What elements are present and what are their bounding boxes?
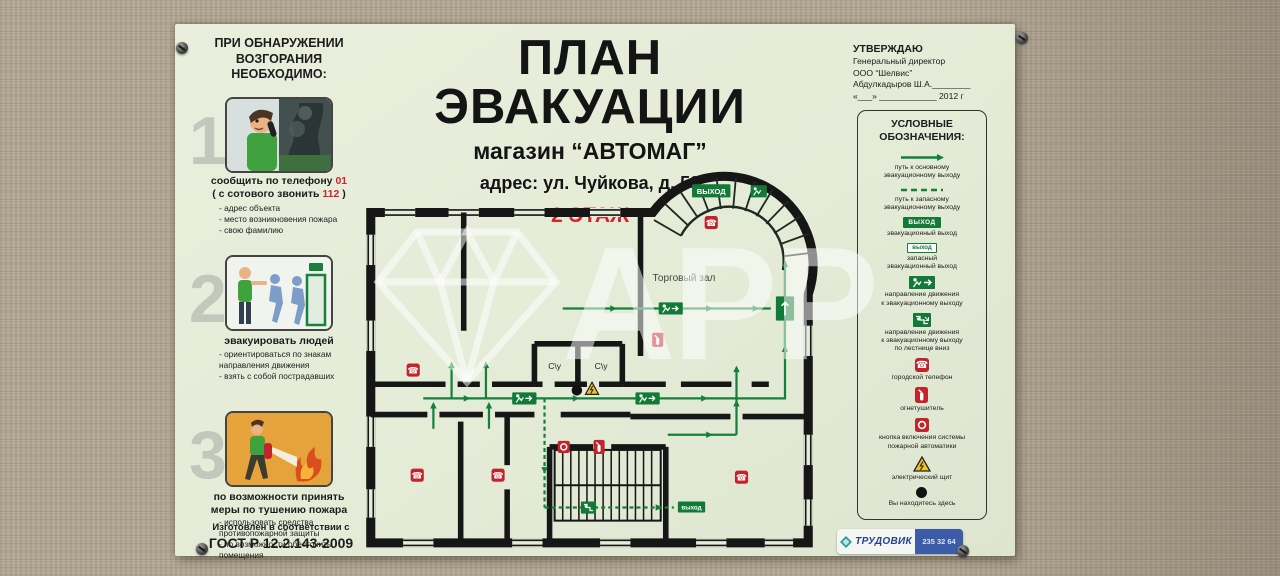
phone-icon: ☎ [705,216,718,229]
step-1-number: 1 [189,107,227,175]
legend-label: путь к запасному эвакуационному выходу [884,196,961,212]
step-3-illustration [225,411,333,487]
gost-line2: ГОСТ Р 12.2.143-2009 [201,535,361,551]
fire-extinguisher-icon [652,333,663,347]
approval-line: Генеральный директор [853,56,999,68]
legend-label: запасный эвакуационный выход [887,255,957,271]
step-3-caption: по возможности принять меры по тушению п… [193,491,365,517]
instructions-header: ПРИ ОБНАРУЖЕНИИ ВОЗГОРАНИЯ НЕОБХОДИМО: [193,36,365,83]
exit-sign-icon: ВЫХОД [903,217,940,228]
you-are-here-dot [916,487,927,498]
vendor-phone-area: 235 32 64 [915,529,963,554]
approval-line: ООО “Шелвис” [853,68,999,80]
legend-item: Вы находитесь здесь [889,487,956,508]
electrical-panel-icon [585,382,598,394]
exit-direction-sign [635,392,659,404]
evacuate-people-picture [227,257,331,329]
main-staircase [555,450,661,521]
bullet: - свою фамилию [219,225,369,236]
main-route-icon [899,153,945,162]
instruction-step-1: 1 сообщить [193,91,365,241]
exit-up-sign [776,296,794,320]
legend-item: выход запасный эвакуационный выход [887,243,957,271]
approval-date: «___» ____________ 2012 г [853,91,999,103]
step-2-number: 2 [189,265,227,333]
screw-top-left [176,42,188,54]
extinguish-fire-picture [227,413,331,485]
bullet: - ориентироваться по знакам направления … [219,349,369,371]
fire-alarm-button-icon [558,441,570,453]
hall-label: Торговый зал [653,273,716,284]
step-1-caption: сообщить по телефону 01 ( с сотового зво… [193,175,365,201]
exit-direction-sign [659,302,683,314]
screw-top-right [1016,32,1028,44]
room-labels: Торговый зал С\у С\у [548,273,715,371]
bullet: - место возникновения пожара [219,214,369,225]
approval-signature: Абдулкадыров Ш.А.________ [853,79,999,91]
legend-label: городской телефон [892,374,953,382]
floor-plan-drawing: ВЫХОД выход ☎ ☎ ☎ ☎ ☎ [361,164,819,556]
page-title: ПЛАН ЭВАКУАЦИИ [361,34,819,132]
gost-note: Изготовлен в соответствии с ГОСТ Р 12.2.… [201,522,361,551]
svg-text:☎: ☎ [412,471,423,481]
legend-item: огнетушитель [900,387,944,413]
vendor-badge: ТРУДОВИК 235 32 64 [837,529,963,554]
vendor-brand: ТРУДОВИК [855,536,912,547]
svg-text:☎: ☎ [408,366,419,376]
wc-label: С\у [548,361,562,371]
legend-item: путь к основному эвакуационному выходу [884,153,961,180]
step-1-bullets: - адрес объекта - место возникновения по… [219,203,369,237]
step-1-phone-01: 01 [335,175,347,187]
legend-item: кнопка включения системы пожарной автома… [879,418,965,450]
step-3-number: 3 [189,421,227,489]
floor-plan: ВЫХОД выход ☎ ☎ ☎ ☎ ☎ [361,164,819,556]
instruction-step-2: 2 [193,249,365,397]
step-1-caption2-text: ( с сотового звонить [212,188,322,200]
svg-text:☎: ☎ [492,471,503,481]
legend-item: путь к запасному эвакуационному выходу [884,186,961,212]
instructions-column: ПРИ ОБНАРУЖЕНИИ ВОЗГОРАНИЯ НЕОБХОДИМО: 1 [193,36,365,555]
exit-signs: ВЫХОД выход [678,184,767,512]
legend-label: кнопка включения системы пожарной автома… [879,434,965,450]
legend-label: направление движения к эвакуационному вы… [881,329,962,353]
reserve-exit-sign-icon: выход [907,243,936,253]
approval-title: УТВЕРЖДАЮ [853,42,999,56]
svg-text:☎: ☎ [736,473,747,483]
photo-of-evacuation-plan: { "watermark": { "text": "АРР" }, "poste… [0,0,1280,576]
phone-icon: ☎ [407,364,420,377]
phone-icon: ☎ [491,469,504,482]
store-name: магазин “АВТОМАГ” [361,138,819,165]
direction-downstairs-icon [913,313,931,327]
fire-extinguisher-icon [594,440,605,454]
you-are-here-dot [572,385,583,396]
vendor-logo-area: ТРУДОВИК [837,529,915,554]
fire-alarm-button-icon [915,418,929,432]
bullet: - взять с собой пострадавших [219,371,369,382]
vendor-diamond-icon [840,536,852,548]
exit-sign-stairs-text: выход [681,505,701,512]
screw-bottom-left [196,543,208,555]
step-2-illustration [225,255,333,331]
phone-icon: ☎ [915,358,929,372]
phone-icon: ☎ [735,471,748,484]
electrical-panel-icon [913,456,931,472]
direction-sign-icon [909,276,935,289]
screw-bottom-right [957,545,969,557]
legend-item: направление движения к эвакуационному вы… [881,276,962,307]
step-2-bullets: - ориентироваться по знакам направления … [219,349,369,383]
step-1-caption-text: сообщить по телефону [211,175,336,187]
legend-item: ☎ городской телефон [892,358,953,382]
fire-extinguisher-icon [915,387,928,403]
exit-direction-sign [512,392,536,404]
phone-icon: ☎ [411,469,424,482]
legend-label: путь к основному эвакуационному выходу [884,164,961,180]
legend-item: ВЫХОД эвакуационный выход [887,217,957,238]
step-2-caption: эвакуировать людей [193,335,365,348]
legend-label: Вы находитесь здесь [889,500,956,508]
step-1-illustration [225,97,333,173]
legend-title: УСЛОВНЫЕ ОБОЗНАЧЕНИЯ: [879,118,964,144]
reserve-route-icon [899,186,945,194]
downstairs-direction-sign [581,501,596,513]
legend-label: электрический щит [892,474,952,482]
approval-block: УТВЕРЖДАЮ Генеральный директор ООО “Шелв… [853,42,999,103]
legend-label: огнетушитель [900,405,944,413]
wc-label: С\у [595,361,609,371]
main-route [423,261,785,398]
step-1-phone-112: 112 [322,188,339,200]
exit-sign-main-text: ВЫХОД [697,187,726,196]
legend-item: электрический щит [892,456,952,482]
step-1-caption2-close: ) [339,188,345,200]
gost-line1: Изготовлен в соответствии с [201,522,361,533]
exit-direction-sign [751,185,767,197]
legend-item: направление движения к эвакуационному вы… [881,313,962,353]
bullet: - адрес объекта [219,203,369,214]
evacuation-plan-poster: ПРИ ОБНАРУЖЕНИИ ВОЗГОРАНИЯ НЕОБХОДИМО: 1 [175,24,1015,556]
interior-walls [371,212,808,542]
legend-label: эвакуационный выход [887,230,957,238]
vendor-phone: 235 32 64 [922,537,955,546]
legend-label: направление движения к эвакуационному вы… [881,291,962,307]
windows [366,208,813,547]
svg-text:☎: ☎ [706,218,717,228]
outer-walls [371,176,813,543]
call-firefighters-picture [227,99,331,171]
legend: УСЛОВНЫЕ ОБОЗНАЧЕНИЯ: путь к основному э… [857,110,987,520]
